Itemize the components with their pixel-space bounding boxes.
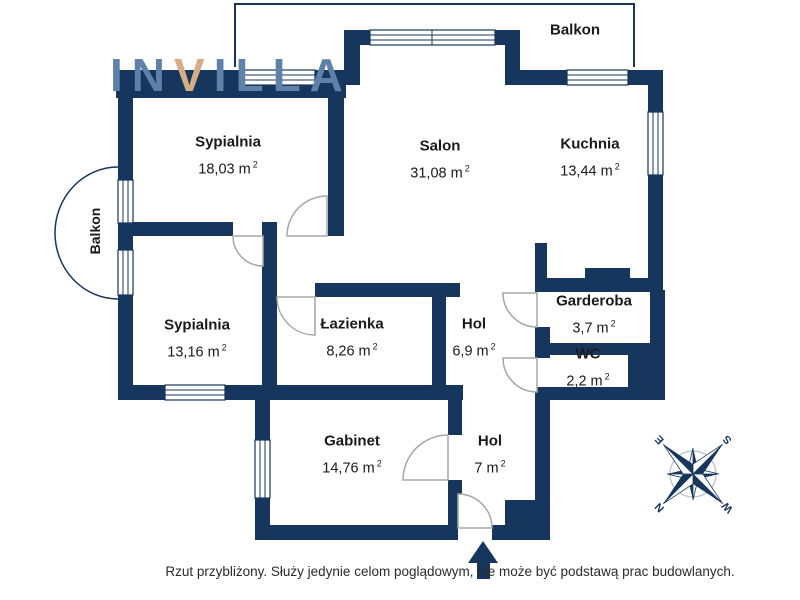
room-area: 14,76 m2 (322, 453, 381, 481)
room-name: WC (566, 343, 609, 366)
room-name: Kuchnia (560, 133, 619, 156)
room-label-sypialnia-1: Sypialnia 18,03 m2 (195, 131, 261, 182)
floor-plan-page: N E S W INVILLA Balkon Balkon Sypialnia … (0, 0, 800, 600)
logo-v: V (174, 49, 214, 101)
room-name: Łazienka (320, 313, 383, 336)
room-area: 13,44 m2 (560, 156, 619, 184)
room-area: 3,7 m2 (556, 313, 632, 341)
room-label-kuchnia: Kuchnia 13,44 m2 (560, 133, 619, 184)
invilla-logo: INVILLA (110, 50, 352, 100)
room-label-salon: Salon 31,08 m2 (410, 135, 469, 186)
balcony-left-label: Balkon (87, 208, 103, 255)
room-label-wc: WC 2,2 m2 (566, 343, 609, 394)
room-label-sypialnia-2: Sypialnia 13,16 m2 (164, 314, 230, 365)
room-area: 7 m2 (474, 453, 505, 481)
labels-layer: INVILLA Balkon Balkon Sypialnia 18,03 m2… (0, 0, 800, 600)
room-name: Hol (452, 313, 495, 336)
room-label-hol-1: Hol 6,9 m2 (452, 313, 495, 364)
room-name: Sypialnia (164, 314, 230, 337)
room-label-gabinet: Gabinet 14,76 m2 (322, 430, 381, 481)
room-name: Garderoba (556, 290, 632, 313)
room-area: 18,03 m2 (195, 154, 261, 182)
room-label-hol-2: Hol 7 m2 (474, 430, 505, 481)
room-area: 31,08 m2 (410, 158, 469, 186)
room-label-lazienka: Łazienka 8,26 m2 (320, 313, 383, 364)
logo-part2: ILLA (214, 49, 352, 101)
disclaimer-text: Rzut przybliżony. Służy jedynie celom po… (100, 564, 800, 579)
room-area: 13,16 m2 (164, 337, 230, 365)
room-area: 8,26 m2 (320, 336, 383, 364)
room-name: Sypialnia (195, 131, 261, 154)
logo-part1: IN (110, 49, 174, 101)
room-area: 2,2 m2 (566, 366, 609, 394)
room-name: Salon (410, 135, 469, 158)
room-name: Gabinet (322, 430, 381, 453)
room-name: Hol (474, 430, 505, 453)
room-label-garderoba: Garderoba 3,7 m2 (556, 290, 632, 341)
balcony-top-label: Balkon (550, 22, 600, 39)
room-area: 6,9 m2 (452, 336, 495, 364)
